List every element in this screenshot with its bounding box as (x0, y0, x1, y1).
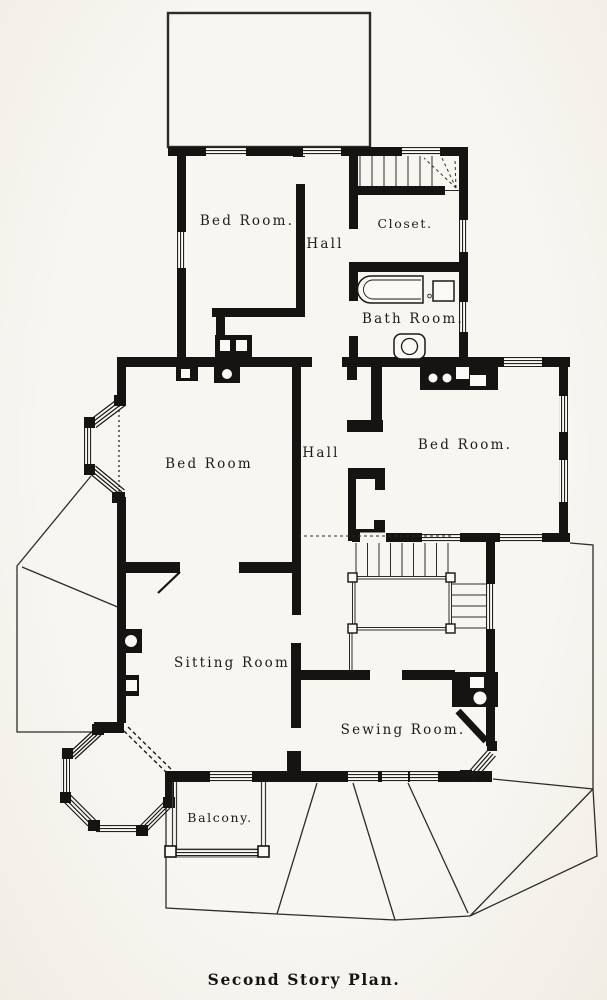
service-stair-winders (424, 158, 456, 188)
sitting-room-fireplace-round (117, 629, 142, 653)
stair-newel-posts (348, 573, 455, 633)
bathroom-sink (433, 281, 454, 301)
sitting-room-fireplace-square (117, 675, 139, 696)
window-right-bedroom-east-1 (559, 396, 568, 432)
balcony-post-right (258, 846, 269, 857)
right-bedroom-east-wall (559, 357, 568, 542)
scanned-floor-plan-page: Bed Room. Hall Closet. Bath Room. Bed Ro… (0, 0, 607, 1000)
lower-east-wall-b (486, 629, 495, 675)
upper-hall-east-wall-c (349, 336, 358, 357)
bay-window (84, 395, 126, 503)
label-bed-room-right: Bed Room. (418, 437, 512, 453)
left-roof-outline (17, 476, 94, 732)
stairwell-rail-bottom (351, 628, 453, 631)
corridor-stub (347, 363, 357, 380)
veranda-roof-face-1 (277, 783, 395, 920)
main-staircase (298, 536, 486, 671)
center-partition-a (292, 357, 301, 615)
sewing-north-wall-b (402, 670, 455, 680)
corridor-closet-wall-b (347, 420, 383, 432)
lower-east-wall-a (486, 542, 495, 584)
stair-right-treads (452, 584, 486, 628)
right-bedroom-door-gap (360, 533, 386, 543)
window-south-3 (382, 771, 408, 782)
below-stair-partition (350, 632, 353, 671)
label-bed-room-upper: Bed Room. (200, 213, 294, 229)
sewing-room-chimney (452, 672, 498, 707)
label-hall-middle: Hall (302, 445, 339, 461)
bedroom-sitting-stub-east (239, 562, 293, 573)
window-south-2 (348, 771, 378, 782)
window-upper-west (177, 232, 186, 268)
right-veranda-outline (470, 779, 597, 916)
main-cross-wall-west (117, 357, 312, 367)
window-upper-east-1 (459, 220, 468, 252)
window-right-bedroom-north (504, 357, 542, 367)
upper-east-wall (459, 147, 468, 367)
bedroom-sitting-stub-west (126, 562, 180, 573)
label-bed-room-middle: Bed Room (165, 456, 253, 472)
bathtub-drain (428, 294, 432, 298)
stairwell-rail-right (449, 578, 452, 628)
se-corner-blob-b (487, 741, 497, 751)
stair-upper-treads (356, 543, 448, 576)
right-roof-edge (570, 543, 593, 789)
stair-closet-wall (349, 186, 445, 195)
veranda-roof-face-2 (395, 783, 470, 920)
middle-bedroom-flue-square (176, 367, 198, 381)
turret-corner-posts (60, 724, 175, 836)
sewing-north-wall-a (299, 670, 370, 680)
chimneys (117, 335, 498, 707)
window-south-4 (410, 771, 438, 782)
service-staircase (360, 156, 459, 191)
bay-window-west-sash (84, 421, 93, 469)
turret-opening-dashed (124, 727, 173, 775)
upper-bedroom-hall-partition (296, 184, 305, 310)
window-north-2 (303, 147, 341, 156)
label-closet: Closet. (377, 216, 432, 231)
label-sitting-room: Sitting Room (174, 655, 290, 671)
octagon-turret (60, 724, 175, 836)
left-roof-hip-line (22, 567, 120, 608)
lower-closet-stub (374, 520, 385, 530)
service-stair-treads (360, 156, 432, 186)
label-sewing-room: Sewing Room. (341, 722, 466, 738)
window-south-1 (210, 771, 252, 782)
window-stair-landing (486, 584, 495, 629)
window-right-bedroom-south-2 (500, 533, 542, 542)
middle-bedroom-flue-round (214, 367, 240, 383)
upper-bedroom-south-wall (212, 308, 305, 317)
label-hall-upper: Hall (306, 236, 343, 252)
right-bedroom-chimney (420, 367, 498, 390)
stairwell-rail-top (351, 577, 453, 580)
floor-plan-drawing: Bed Room. Hall Closet. Bath Room. Bed Ro… (0, 0, 607, 1000)
lower-closet-right (375, 468, 385, 490)
closet-bath-divider (352, 262, 459, 272)
center-partition-b (291, 643, 301, 728)
turret-window-south (96, 825, 140, 834)
window-right-bedroom-south-1 (422, 533, 460, 542)
bedroom-door-swing (158, 572, 180, 593)
window-right-bedroom-east-2 (559, 460, 568, 502)
label-balcony: Balcony. (187, 810, 252, 825)
window-north-3 (402, 147, 440, 156)
stairwell-rail-left (353, 578, 356, 628)
figure-caption: Second Story Plan. (208, 970, 401, 989)
upper-roof-outline (168, 13, 370, 147)
toilet (394, 334, 425, 359)
balcony-front-rail (171, 849, 267, 857)
lower-east-wall-c (486, 706, 495, 746)
balcony-post-left (165, 846, 176, 857)
label-bath-room: Bath Room. (362, 311, 464, 327)
window-north-1 (206, 147, 246, 156)
upper-bedroom-chimney (215, 335, 252, 357)
